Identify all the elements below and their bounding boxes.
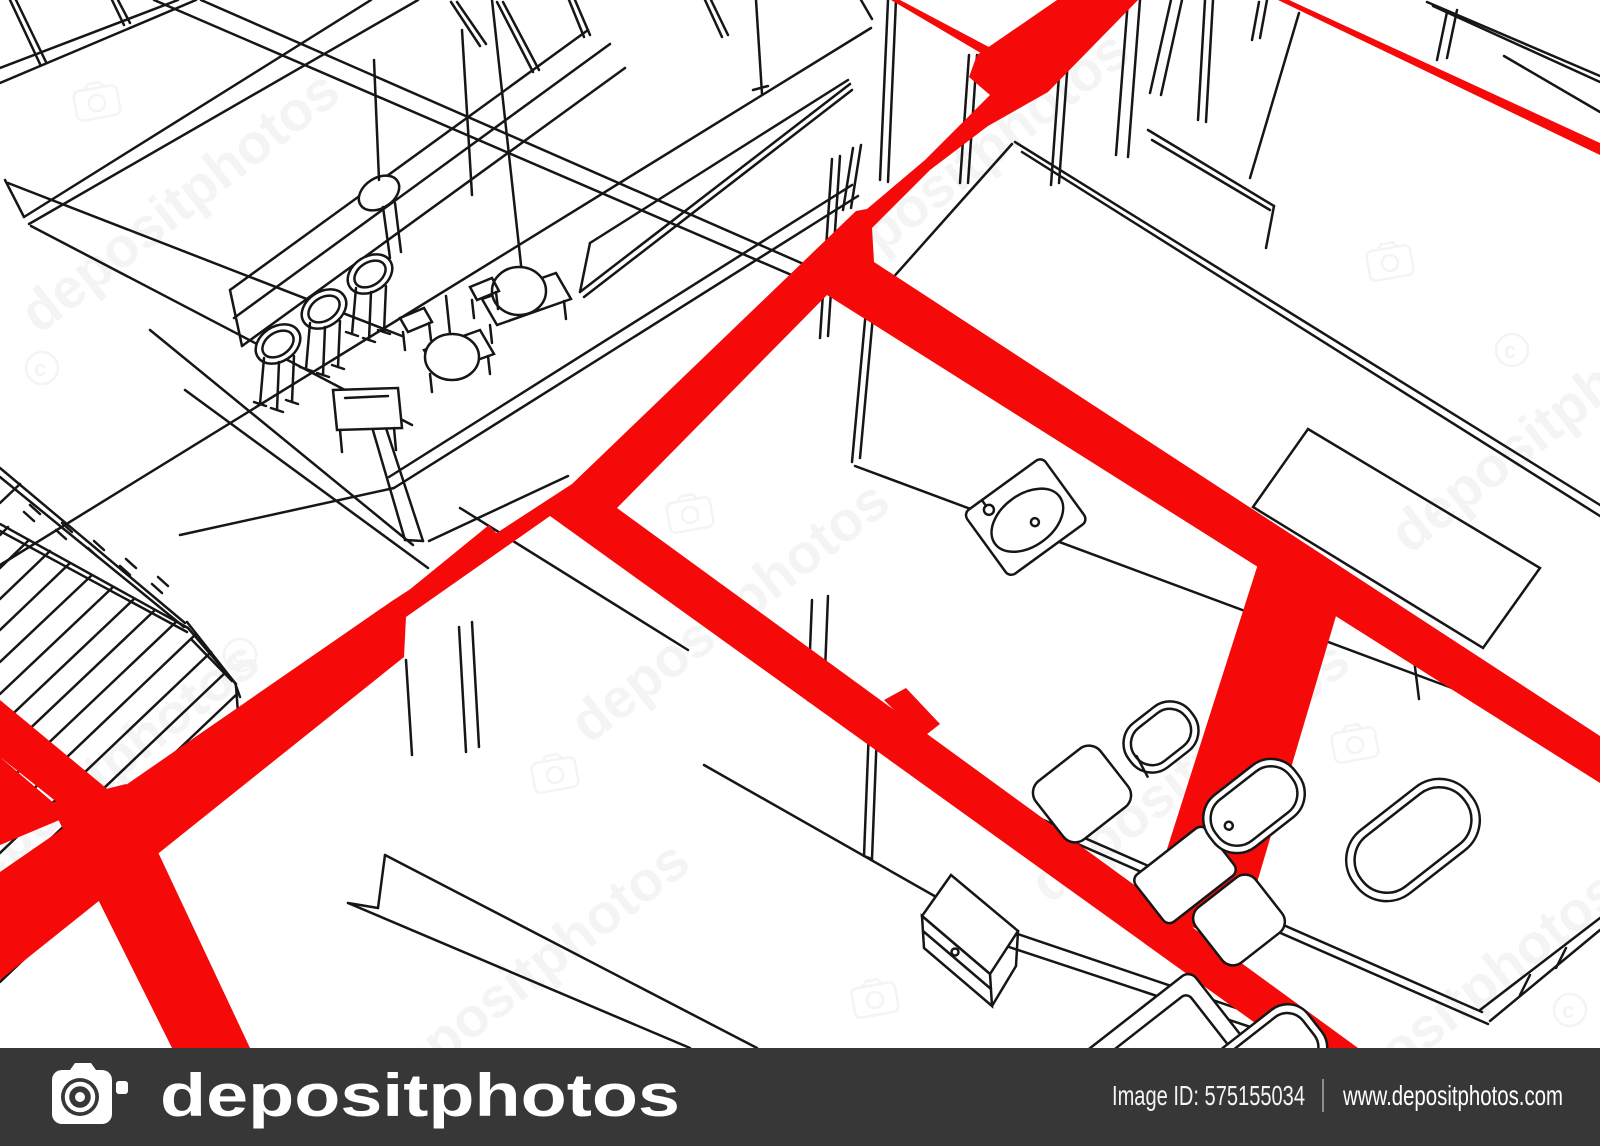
svg-text:c: c [34, 356, 46, 381]
svg-text:c: c [1562, 998, 1574, 1023]
svg-text:depositphotos: depositphotos [160, 1062, 680, 1129]
svg-text:www.depositphotos.com: www.depositphotos.com [1342, 1080, 1563, 1111]
svg-text:c: c [1504, 338, 1516, 363]
svg-text:Image ID: 575155034: Image ID: 575155034 [1112, 1080, 1305, 1111]
svg-text:c: c [232, 643, 244, 668]
